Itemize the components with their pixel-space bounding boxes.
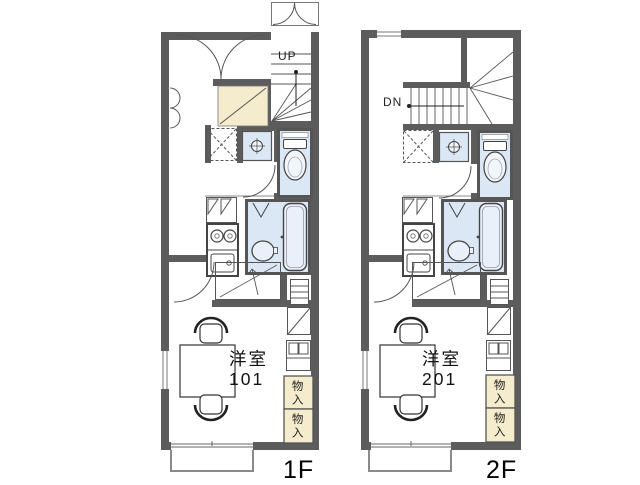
floorplan-drawing: [0, 0, 640, 485]
corner-shelf-icon: [488, 308, 511, 335]
ladder-icon: [491, 280, 509, 305]
ladder-icon: [291, 280, 309, 305]
refrigerator-icon: [403, 198, 433, 223]
entrance-porch: [272, 3, 319, 26]
table-icon: [180, 345, 235, 397]
room-name-201: 洋室: [422, 350, 461, 369]
stairs-down-label: DN: [383, 96, 402, 109]
balcony-icon: [171, 450, 253, 471]
entrance-door-icon: [273, 3, 316, 25]
storage-label: 物入: [492, 377, 505, 407]
side-window-2f: [360, 351, 370, 389]
floor-label-2f: 2F: [486, 457, 517, 485]
washbasin-icon: [440, 133, 469, 162]
kitchen-unit-icon: [207, 224, 238, 276]
floorplan-canvas: UP DN 洋室 101 洋室 201 物入 物入 物入 物入 1F 2F: [0, 0, 640, 485]
stairs-up-label: UP: [278, 50, 297, 63]
washroom-door-arc: [439, 166, 471, 198]
stairs-up-direction-arrow: [294, 70, 298, 106]
balcony-sliding-door-1f: [171, 441, 253, 451]
room-number-201: 201: [422, 370, 457, 389]
balcony-icon: [369, 450, 451, 471]
refrigerator-icon: [207, 198, 237, 223]
genkan-step: [218, 86, 268, 126]
storage-label: 物入: [290, 378, 303, 408]
washbasin-icon: [243, 132, 272, 161]
entry-hall-double-doors-icon: [177, 35, 265, 79]
storage-label: 物入: [492, 410, 505, 440]
washroom-door-arc: [243, 165, 275, 197]
storage-label: 物入: [290, 411, 303, 441]
stairs-down-direction-arrow: [407, 104, 464, 108]
staircase-up-icon: [271, 54, 311, 121]
kitchen-unit-icon: [403, 224, 434, 276]
chair-icon: [195, 318, 227, 343]
top-window-2f: [377, 29, 401, 39]
cabinet-icon: [287, 341, 311, 371]
floor-label-1f: 1F: [283, 457, 314, 485]
cabinet-icon: [487, 341, 511, 371]
chair-icon: [195, 395, 227, 420]
washing-machine-icon: [404, 131, 434, 163]
shoe-closet-doors-icon: [170, 88, 180, 128]
chair-icon: [395, 318, 427, 343]
corner-shelf-icon: [288, 308, 311, 335]
room-number-101: 101: [229, 370, 264, 389]
toilet-icon: [479, 132, 512, 199]
balcony-sliding-door-2f: [371, 441, 451, 451]
room-name-101: 洋室: [229, 350, 268, 369]
toilet-icon: [279, 130, 312, 197]
side-window-1f: [160, 351, 170, 389]
chair-icon: [395, 395, 427, 420]
